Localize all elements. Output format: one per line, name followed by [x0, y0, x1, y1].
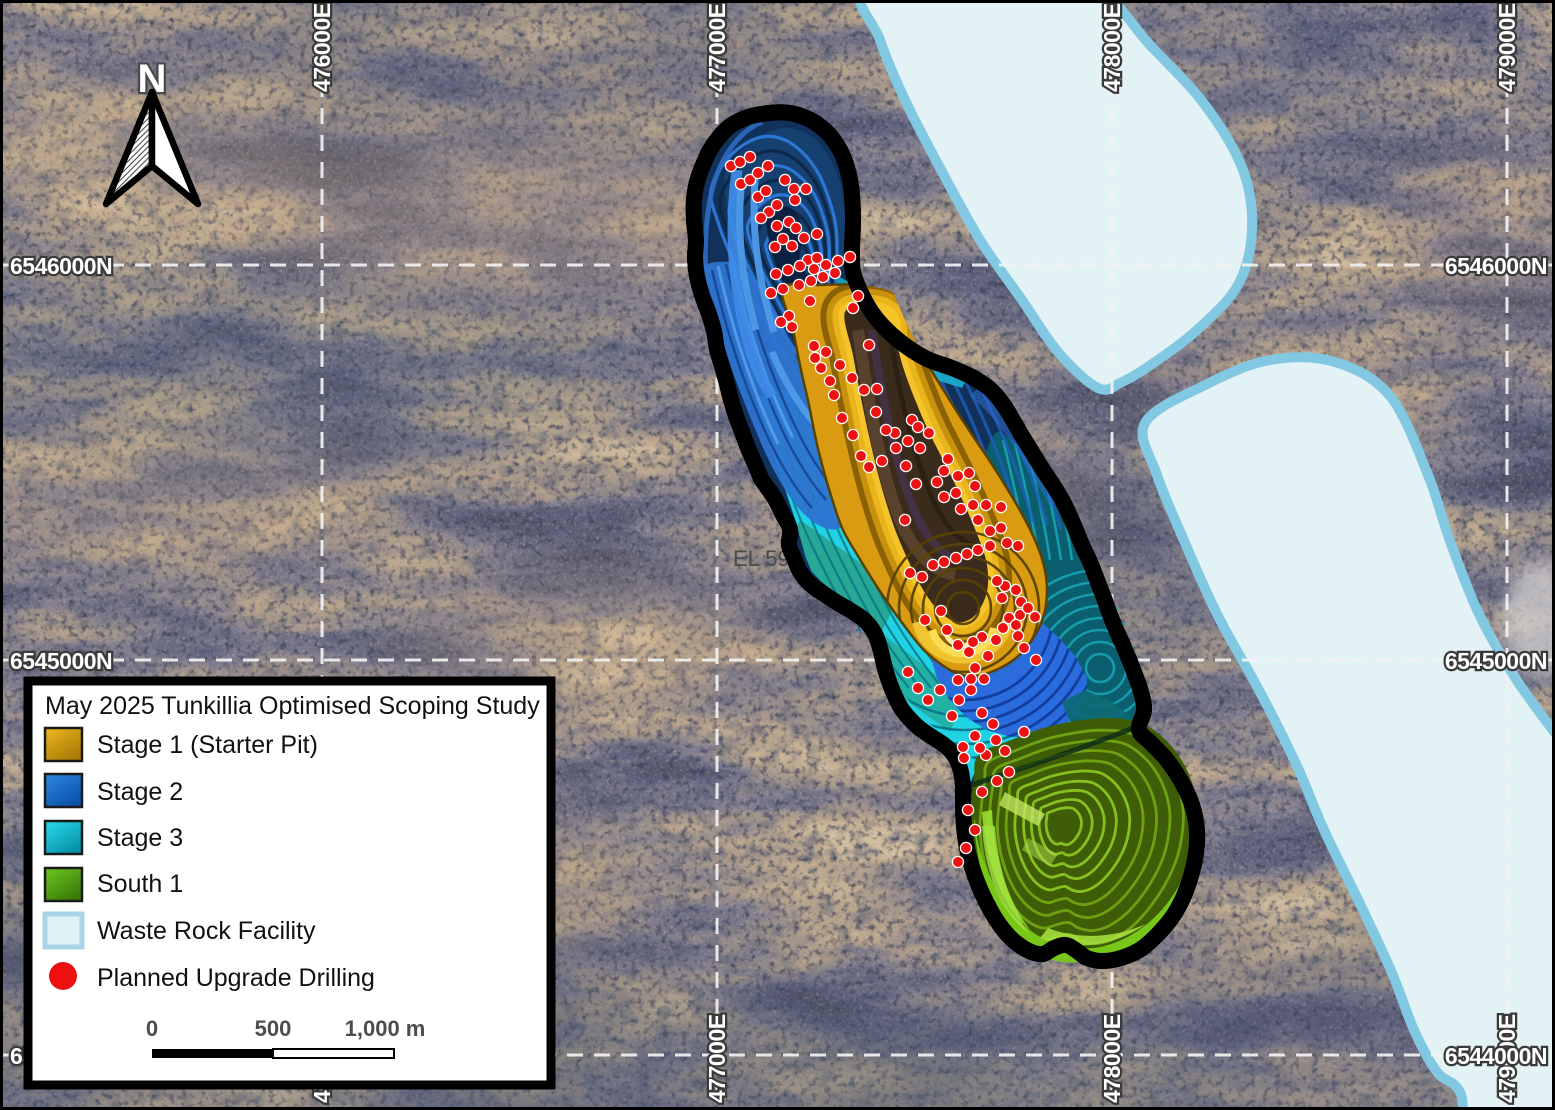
svg-text:476000E: 476000E: [309, 3, 335, 92]
svg-text:Stage 3: Stage 3: [97, 824, 183, 852]
svg-text:1,000 m: 1,000 m: [345, 1016, 426, 1041]
svg-text:South 1: South 1: [97, 870, 183, 898]
svg-text:0: 0: [146, 1016, 158, 1041]
svg-text:6546000N: 6546000N: [1445, 253, 1547, 279]
svg-text:477000E: 477000E: [704, 1014, 730, 1103]
svg-text:Stage 2: Stage 2: [97, 778, 183, 806]
svg-text:479000E: 479000E: [1494, 3, 1520, 92]
svg-text:6546000N: 6546000N: [10, 253, 112, 279]
svg-text:6544000N: 6544000N: [1445, 1043, 1547, 1069]
svg-text:477000E: 477000E: [704, 3, 730, 92]
svg-text:May 2025 Tunkillia Optimised S: May 2025 Tunkillia Optimised Scoping Stu…: [45, 692, 540, 720]
svg-text:478000E: 478000E: [1099, 1014, 1125, 1103]
svg-text:500: 500: [255, 1016, 292, 1041]
svg-text:Stage 1 (Starter Pit): Stage 1 (Starter Pit): [97, 731, 318, 759]
svg-text:Waste Rock Facility: Waste Rock Facility: [97, 917, 316, 945]
svg-text:478000E: 478000E: [1099, 3, 1125, 92]
svg-text:6545000N: 6545000N: [1445, 648, 1547, 674]
svg-text:6545000N: 6545000N: [10, 648, 112, 674]
svg-text:Planned Upgrade Drilling: Planned Upgrade Drilling: [97, 964, 375, 992]
